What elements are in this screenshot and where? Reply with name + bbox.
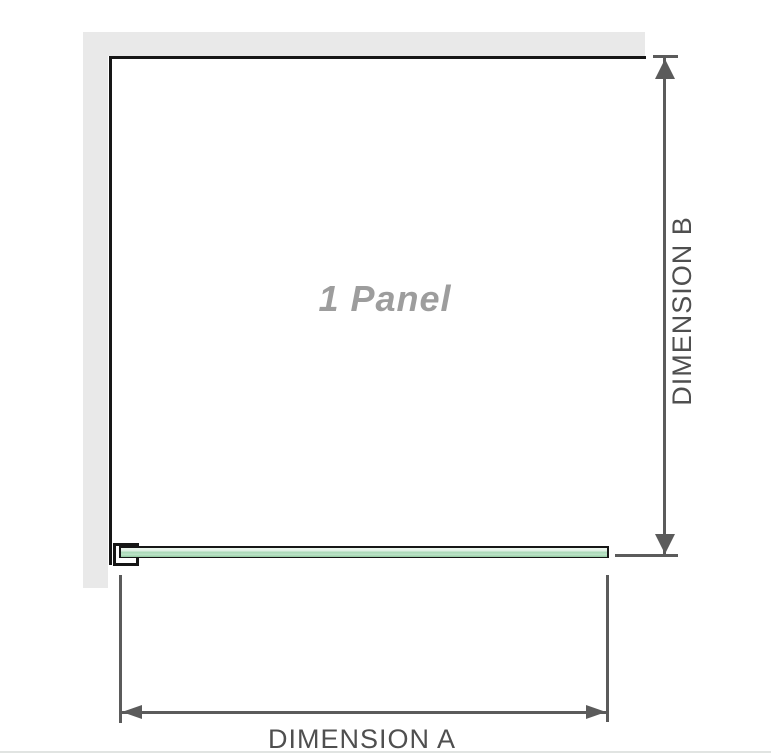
panel-top-edge bbox=[110, 56, 646, 59]
shower-panel-diagram: 1 Panel DIMENSION B DIMENSION A bbox=[0, 0, 771, 755]
dimension-b-label: DIMENSION B bbox=[668, 211, 696, 411]
dimension-a-line bbox=[122, 711, 606, 714]
dimension-b-line bbox=[663, 58, 666, 555]
dimension-b-tick-bottom bbox=[615, 554, 678, 557]
panel-count-label: 1 Panel bbox=[285, 278, 485, 320]
bottom-divider bbox=[0, 751, 771, 753]
dimension-b-arrow-up-icon bbox=[655, 59, 675, 79]
panel-left-edge bbox=[109, 56, 112, 565]
dimension-b-tick-top bbox=[653, 55, 678, 58]
wall-side-band bbox=[83, 32, 108, 588]
dimension-a-arrow-right-icon bbox=[586, 705, 606, 719]
dimension-a-extension-left bbox=[119, 575, 122, 723]
wall-top-band bbox=[83, 32, 645, 56]
dimension-a-arrow-left-icon bbox=[122, 705, 142, 719]
dimension-b-arrow-down-icon bbox=[655, 534, 675, 554]
dimension-a-extension-right bbox=[606, 575, 609, 722]
glass-panel-plan bbox=[119, 546, 609, 558]
